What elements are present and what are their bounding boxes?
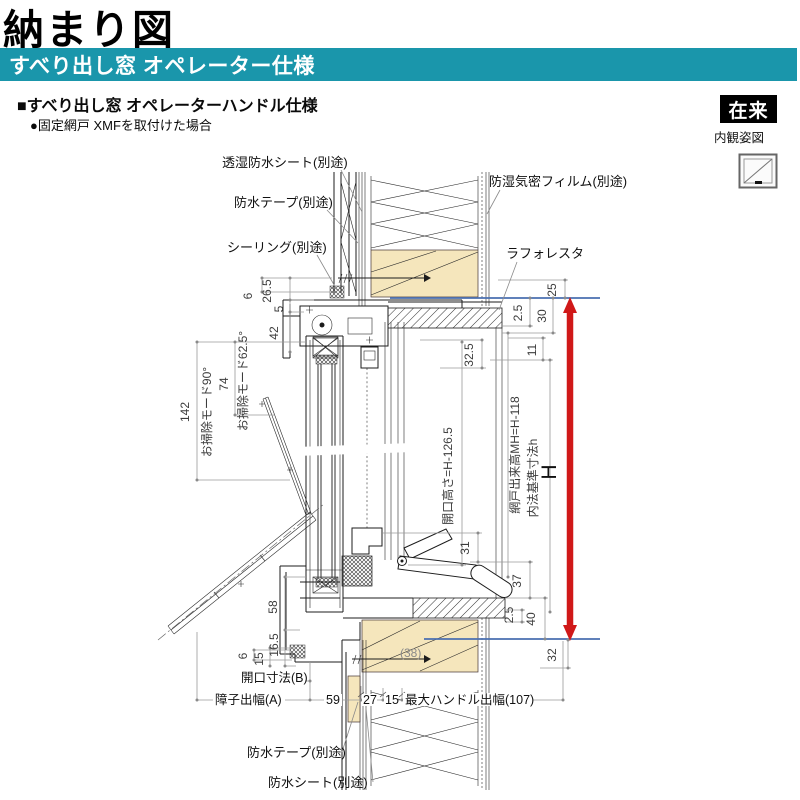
dim-2-5-a: 2.5 (511, 304, 525, 321)
dim-opening-height: 開口高さ=H-126.5 (440, 427, 455, 525)
glass-panes (318, 364, 335, 578)
interior-trim-hatch-top (388, 308, 502, 328)
callout-sealing: シーリング(別途) (227, 240, 327, 255)
dim-142: 142 (178, 402, 192, 422)
dim-32-5: 32.5 (462, 343, 476, 367)
page: 納まり図 すべり出し窓 オペレーター仕様 ■すべり出し窓 オペレーターハンドル仕… (0, 0, 800, 800)
dim-27: 27 (363, 693, 377, 707)
dim-30: 30 (535, 309, 549, 323)
dim-H: H (538, 464, 561, 479)
dim-wood-38: (38) (400, 646, 421, 660)
dim-42: 42 (267, 326, 281, 340)
dim-32: 32 (545, 648, 559, 662)
callout-sheet-top: 透湿防水シート(別途) (222, 155, 348, 170)
dim-2-5-b: 2.5 (502, 606, 516, 623)
screen-frame-lines (385, 322, 404, 560)
fixed-screen (352, 322, 404, 560)
interior-wall-face (496, 328, 502, 598)
break-mark (296, 443, 412, 456)
dim-25: 25 (545, 283, 559, 297)
sash-closed (306, 336, 343, 612)
dim-6-bottom: 6 (236, 652, 250, 659)
callout-laforesta: ラフォレスタ (506, 246, 584, 261)
dim-26-5: 26.5 (260, 279, 274, 303)
callout-tape-bottom: 防水テープ(別途) (247, 745, 346, 760)
callout-film: 防湿気密フィルム(別途) (489, 174, 627, 189)
sash-open-62 (158, 504, 324, 640)
operator-gearbox (342, 556, 372, 586)
dim-74: 74 (217, 377, 231, 391)
interior-trim-hatch-bottom (413, 598, 505, 618)
dim-opening-b: 開口寸法(B) (241, 671, 308, 685)
sealing-block-bottom (290, 645, 305, 658)
height-arrow (563, 297, 577, 641)
dim-sash-a: 障子出幅(A) (215, 692, 282, 707)
callout-sheet-bottom: 防水シート(別途) (268, 775, 368, 790)
callout-tape-top: 防水テープ(別途) (234, 195, 333, 210)
label-cleaning-90: お掃除モード90° (199, 367, 214, 457)
sealing-block (330, 286, 344, 298)
technical-drawing: 透湿防水シート(別途) 防水テープ(別途) シーリング(別途) 防湿気密フィルム… (0, 0, 800, 800)
dim-11: 11 (525, 343, 539, 356)
dim-handle-max: 最大ハンドル出幅(107) (405, 692, 534, 707)
dim-screen-height: 網戸出来高MH=H-118 (507, 396, 522, 514)
dim-37: 37 (510, 574, 524, 588)
dim-59: 59 (326, 693, 340, 707)
dim-58: 58 (266, 600, 280, 614)
pivot-axis-line (158, 504, 324, 640)
dim-16-5: 16.5 (267, 633, 281, 657)
dim-31: 31 (458, 541, 472, 555)
dim-15-row: 15 (385, 693, 399, 707)
dim-6-top: 6 (241, 292, 255, 299)
dim-5: 5 (272, 305, 286, 312)
dim-15-left: 15 (252, 652, 266, 666)
dim-40: 40 (524, 612, 538, 626)
insulation-pattern-top (371, 176, 478, 250)
label-cleaning-62: お掃除モード62.5° (235, 331, 250, 431)
